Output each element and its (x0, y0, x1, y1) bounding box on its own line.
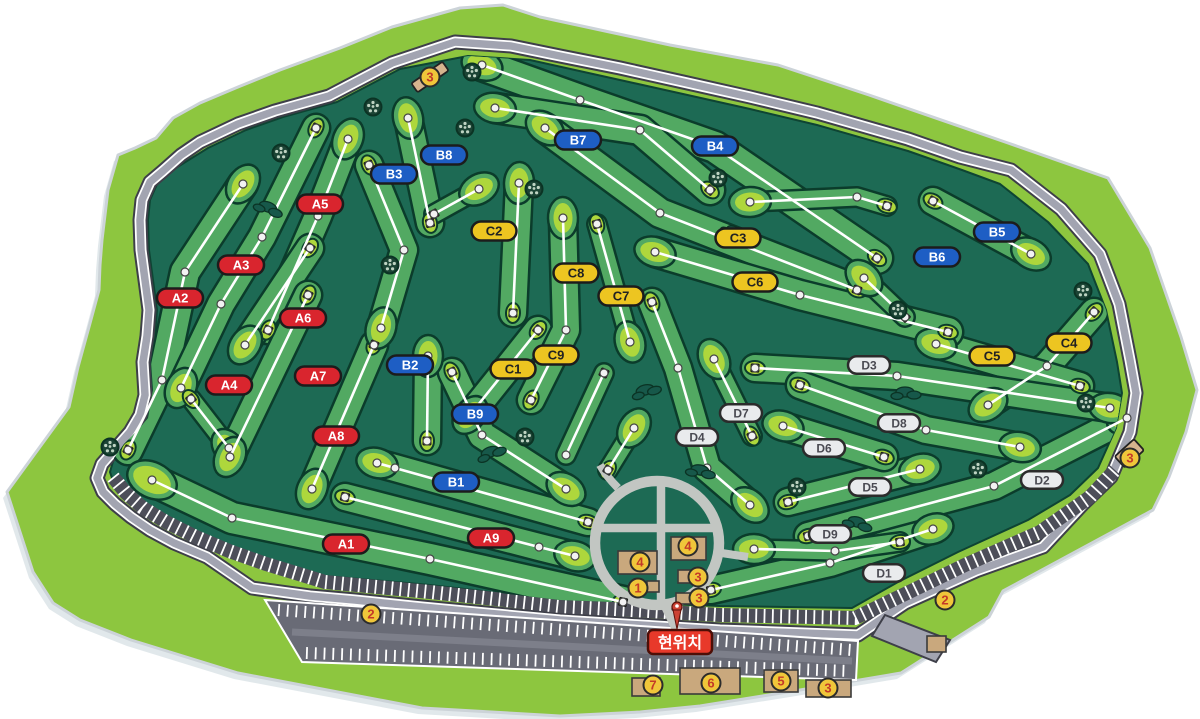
svg-text:3: 3 (426, 70, 433, 85)
svg-text:C8: C8 (568, 266, 585, 281)
svg-text:C7: C7 (613, 289, 630, 304)
svg-text:A3: A3 (233, 258, 250, 273)
svg-text:3: 3 (695, 591, 702, 606)
svg-text:3: 3 (694, 570, 701, 585)
svg-text:A8: A8 (328, 429, 345, 444)
svg-text:A6: A6 (295, 311, 312, 326)
svg-text:D5: D5 (862, 481, 878, 495)
svg-text:B9: B9 (467, 407, 484, 422)
svg-text:1: 1 (634, 581, 641, 596)
svg-text:C9: C9 (548, 348, 565, 363)
svg-text:A5: A5 (312, 197, 329, 212)
svg-text:A9: A9 (483, 531, 500, 546)
svg-text:C4: C4 (1061, 336, 1078, 351)
svg-text:B4: B4 (707, 139, 724, 154)
svg-text:A2: A2 (172, 291, 189, 306)
svg-text:7: 7 (649, 678, 656, 693)
svg-text:D3: D3 (861, 359, 877, 373)
svg-text:2: 2 (367, 607, 374, 622)
svg-text:3: 3 (1126, 451, 1133, 466)
svg-text:2: 2 (941, 593, 948, 608)
svg-text:D1: D1 (876, 567, 892, 581)
svg-text:C6: C6 (747, 275, 764, 290)
svg-text:A4: A4 (221, 378, 238, 393)
svg-text:D7: D7 (733, 407, 749, 421)
svg-text:D2: D2 (1034, 474, 1050, 488)
svg-text:B3: B3 (386, 167, 403, 182)
svg-text:4: 4 (684, 539, 692, 554)
svg-text:B5: B5 (989, 225, 1006, 240)
svg-text:D9: D9 (822, 528, 838, 542)
svg-text:B8: B8 (436, 148, 453, 163)
svg-text:C5: C5 (984, 349, 1001, 364)
svg-text:B1: B1 (448, 475, 465, 490)
svg-text:D6: D6 (816, 442, 832, 456)
svg-text:B6: B6 (929, 250, 946, 265)
svg-text:C3: C3 (730, 231, 747, 246)
svg-text:C2: C2 (486, 224, 503, 239)
svg-text:A1: A1 (338, 537, 355, 552)
svg-text:B2: B2 (402, 358, 419, 373)
svg-text:6: 6 (707, 676, 714, 691)
svg-text:D8: D8 (891, 417, 907, 431)
svg-text:현위치: 현위치 (658, 633, 702, 652)
svg-text:4: 4 (636, 555, 644, 570)
svg-text:D4: D4 (689, 431, 705, 445)
svg-text:3: 3 (824, 681, 831, 696)
svg-text:5: 5 (777, 674, 784, 689)
svg-text:A7: A7 (310, 369, 327, 384)
svg-text:B7: B7 (570, 133, 587, 148)
svg-text:C1: C1 (505, 362, 522, 377)
